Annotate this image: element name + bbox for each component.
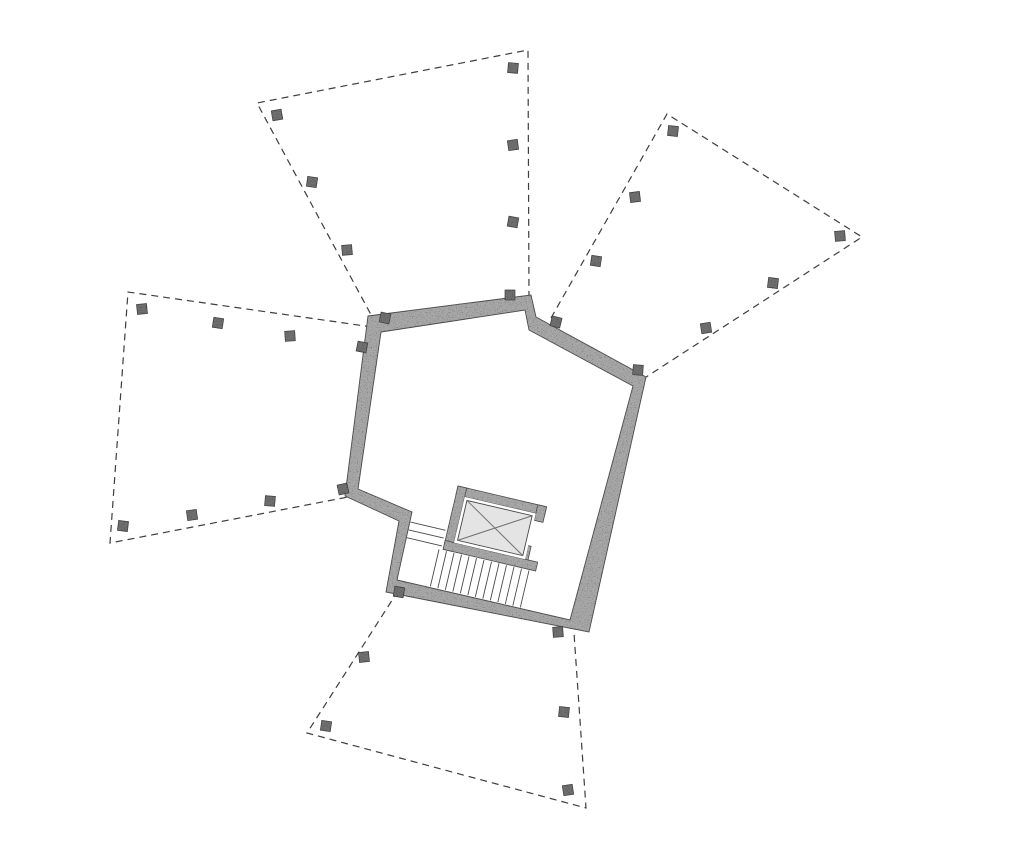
column-marker: [633, 365, 644, 376]
stair-tread-line: [410, 522, 445, 530]
core-wall: [345, 295, 646, 632]
stair-tread-line: [513, 569, 522, 606]
stair-tread-line: [453, 555, 462, 592]
floor-plan-canvas: [0, 0, 1024, 855]
column-marker: [590, 255, 601, 266]
column-marker: [271, 109, 283, 121]
stair-tread-line: [483, 562, 492, 599]
column-marker: [306, 176, 317, 187]
stair-tread-line: [505, 567, 514, 604]
column-marker: [559, 707, 570, 718]
column-marker: [505, 290, 515, 300]
column-marker: [337, 483, 349, 495]
column-marker: [668, 126, 679, 137]
stair-tread-line: [520, 570, 529, 607]
floor-plan-page: [0, 0, 1024, 855]
slab-outlines: [110, 50, 862, 808]
stair-tread-line: [438, 551, 447, 588]
column-marker: [212, 317, 223, 328]
column-marker: [359, 652, 370, 663]
stair-tread-line: [445, 553, 454, 590]
stair-tread-line: [430, 549, 439, 586]
stair-tread-line: [409, 530, 444, 538]
column-marker: [553, 627, 564, 638]
column-marker: [379, 312, 391, 324]
column-marker: [700, 322, 711, 333]
stair-tread-line: [468, 558, 477, 595]
slab-outline-north: [257, 50, 529, 324]
column-marker: [508, 63, 519, 74]
stair-tread-line: [407, 538, 442, 546]
column-marker: [356, 341, 368, 353]
slab-outline-north-east: [551, 114, 862, 379]
column-marker: [507, 139, 518, 150]
column-marker: [285, 331, 296, 342]
column-marker: [835, 231, 846, 242]
column-marker: [320, 720, 331, 731]
column-marker: [562, 784, 573, 795]
column-marker: [265, 496, 276, 507]
stair-tread-line: [460, 556, 469, 593]
slab-outline-west: [110, 292, 372, 543]
column-marker: [342, 245, 353, 256]
column-marker: [767, 277, 778, 288]
column-marker: [507, 216, 519, 228]
stair-tread-line: [490, 563, 499, 600]
column-marker: [186, 509, 197, 520]
stair-tread-line: [498, 565, 507, 602]
column-marker: [629, 191, 640, 202]
column-marker: [117, 520, 128, 531]
masonry-layer: [117, 63, 845, 796]
column-marker: [393, 586, 405, 598]
stair-tread-line: [475, 560, 484, 597]
column-marker: [550, 316, 562, 328]
column-marker: [137, 304, 148, 315]
